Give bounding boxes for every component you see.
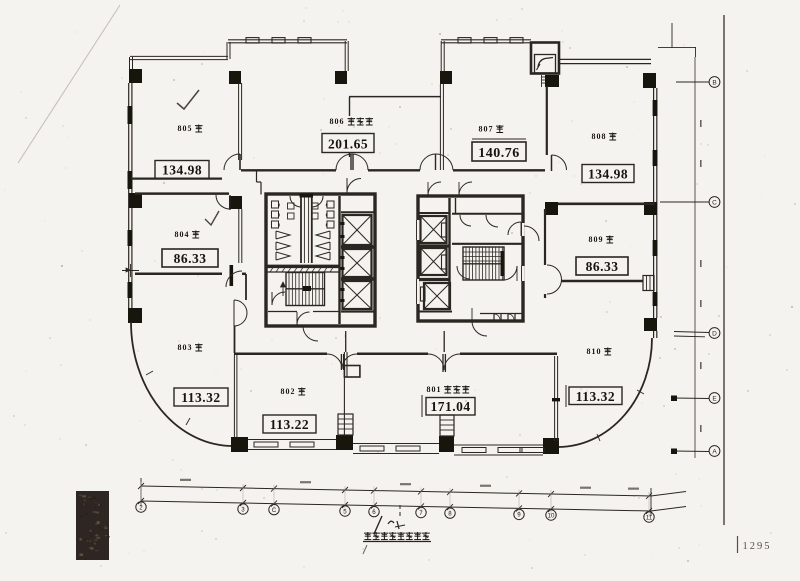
svg-text:C: C <box>272 507 277 514</box>
svg-text:10: 10 <box>548 512 555 519</box>
svg-text:7: 7 <box>419 510 423 517</box>
svg-text:A: A <box>712 448 717 455</box>
svg-text:201.65: 201.65 <box>328 137 368 152</box>
svg-text:B: B <box>712 79 716 86</box>
svg-text:86.33: 86.33 <box>174 251 207 266</box>
svg-text:803: 803 <box>178 343 193 352</box>
svg-text:806: 806 <box>330 117 345 126</box>
svg-text:804: 804 <box>175 230 190 239</box>
svg-text:808: 808 <box>592 132 607 141</box>
svg-text:5: 5 <box>343 508 347 515</box>
svg-text:801: 801 <box>427 385 442 394</box>
svg-text:171.04: 171.04 <box>430 399 470 414</box>
svg-text:86.33: 86.33 <box>586 259 619 274</box>
svg-text:810: 810 <box>587 347 602 356</box>
svg-text:134.98: 134.98 <box>162 163 202 178</box>
svg-text:134.98: 134.98 <box>588 167 628 182</box>
svg-text:3: 3 <box>241 506 245 513</box>
svg-text:113.32: 113.32 <box>576 389 615 404</box>
svg-text:9: 9 <box>517 512 521 519</box>
svg-text:2: 2 <box>139 504 143 511</box>
svg-text:113.32: 113.32 <box>181 390 220 405</box>
svg-text:113.22: 113.22 <box>270 417 309 432</box>
svg-text:8: 8 <box>448 510 452 517</box>
svg-text:E: E <box>712 395 717 402</box>
svg-text:6: 6 <box>372 509 376 516</box>
svg-text:802: 802 <box>281 387 296 396</box>
svg-text:805: 805 <box>178 124 193 133</box>
svg-text:140.76: 140.76 <box>478 146 520 161</box>
svg-text:807: 807 <box>479 125 494 134</box>
svg-text:11: 11 <box>646 514 653 521</box>
svg-text:C: C <box>712 199 717 206</box>
svg-text:809: 809 <box>589 235 604 244</box>
svg-text:D: D <box>712 330 717 337</box>
svg-text:1295: 1295 <box>743 541 772 552</box>
